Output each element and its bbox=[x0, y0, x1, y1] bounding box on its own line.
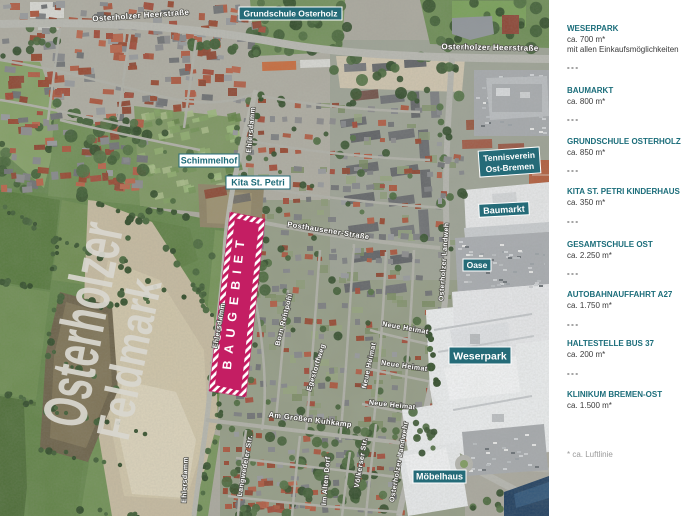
svg-text:Osterholzer Heerstraße: Osterholzer Heerstraße bbox=[441, 42, 539, 53]
svg-text:Oase: Oase bbox=[467, 260, 488, 270]
svg-text:Weserpark: Weserpark bbox=[453, 350, 507, 362]
svg-text:Kita St. Petri: Kita St. Petri bbox=[231, 178, 285, 188]
svg-text:Möbelhaus: Möbelhaus bbox=[416, 472, 463, 482]
svg-text:Grundschule Osterholz: Grundschule Osterholz bbox=[244, 9, 338, 19]
svg-text:Schimmelhof: Schimmelhof bbox=[181, 156, 239, 166]
